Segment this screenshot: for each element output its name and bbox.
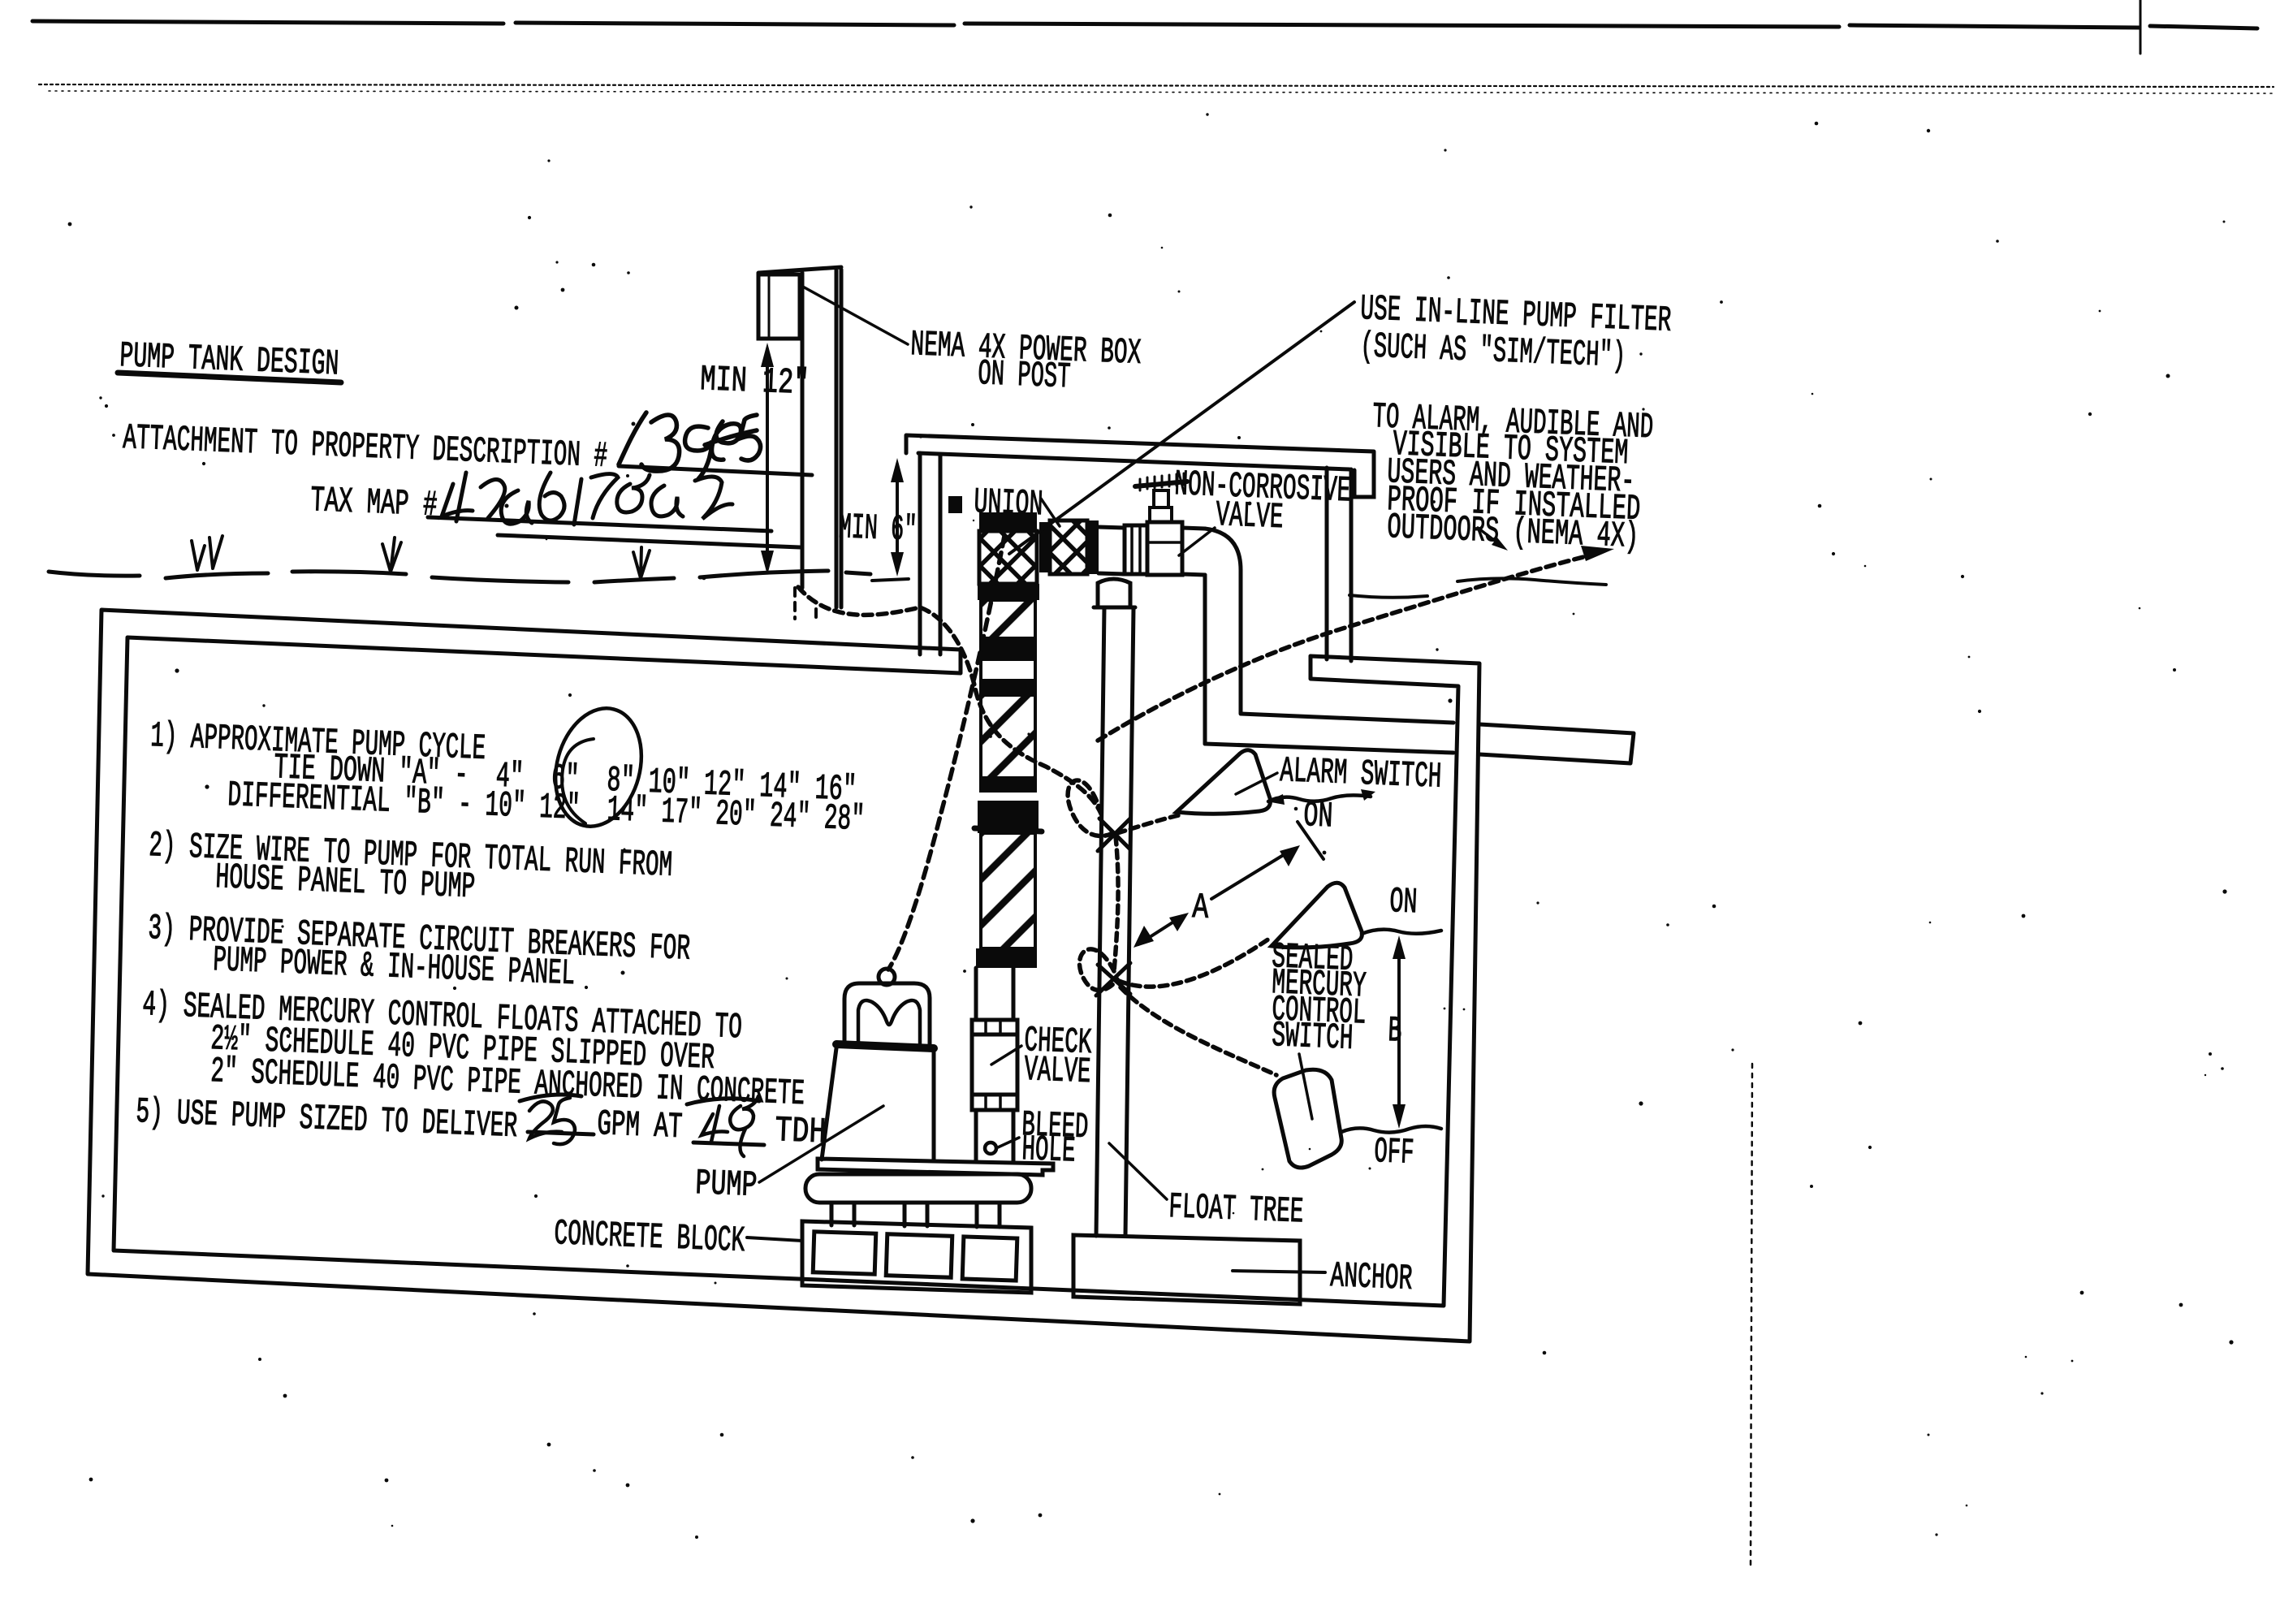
svg-text:ALARM SWITCH: ALARM SWITCH [1279,751,1442,798]
svg-text:GPM AT: GPM AT [596,1104,683,1148]
svg-text:FLOAT TREE: FLOAT TREE [1168,1187,1304,1233]
svg-text:A: A [1191,888,1209,929]
svg-text:UNION: UNION [973,482,1043,525]
svg-text:TAX MAP #: TAX MAP # [309,481,438,526]
svg-text:SWITCH: SWITCH [1271,1016,1354,1060]
svg-text:VALVE: VALVE [1023,1050,1091,1093]
svg-text:TDH: TDH [774,1111,827,1153]
svg-text:ATTACHMENT TO PROPERTY DESCRIP: ATTACHMENT TO PROPERTY DESCRIPTION # [122,418,607,477]
svg-text:CONCRETE BLOCK: CONCRETE BLOCK [553,1214,745,1262]
svg-text:MIN 6": MIN 6" [837,508,918,551]
svg-text:MIN 12": MIN 12" [699,360,810,404]
svg-text:OFF: OFF [1373,1132,1414,1174]
svg-text:B: B [1387,1011,1402,1052]
svg-text:ON POST: ON POST [977,354,1071,398]
svg-text:HOLE: HOLE [1021,1129,1076,1172]
svg-text:ANCHOR: ANCHOR [1329,1256,1413,1300]
svg-text:PUMP: PUMP [694,1164,758,1207]
svg-text:ON: ON [1302,796,1333,837]
svg-text:ON: ON [1388,882,1418,923]
